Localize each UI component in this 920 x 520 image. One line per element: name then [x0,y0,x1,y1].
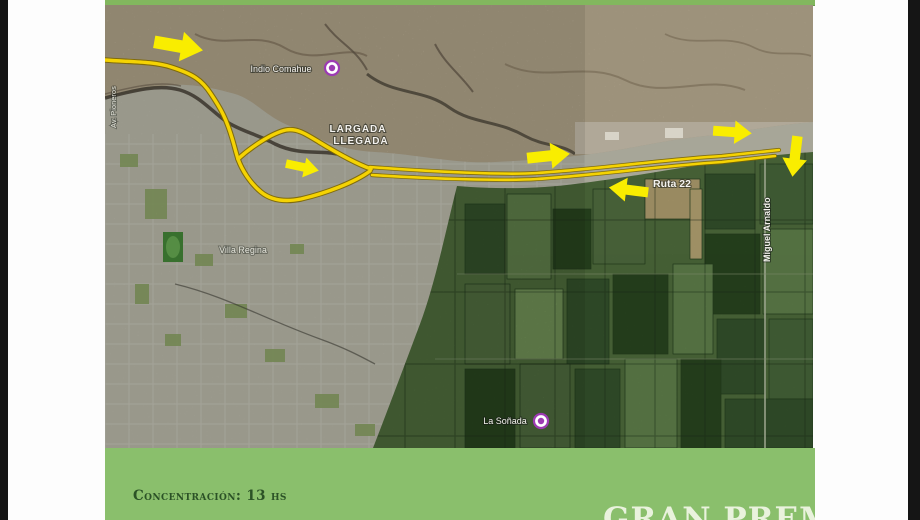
start-label-line1: LARGADA [330,124,387,135]
left-black-bar [0,0,8,520]
poi-top-label: Indio Comahue [250,64,311,74]
street-left-label: Av. Pioneros [109,86,118,128]
poi-marker-la-sonada-icon [534,414,548,428]
poi-marker-indio-comahue-icon [325,61,339,75]
start-label-line2: LLEGADA [333,136,388,147]
event-info: Concentración: 13 hs Largada: 14 hs Larg… [133,456,440,520]
event-title: GRAN PREMIO [603,501,815,520]
right-black-bar [908,0,920,520]
satellite-map: Indio Comahue LARGADA LLEGADA Ruta 22 Mi… [105,5,813,448]
highway-label: Ruta 22 [653,178,691,190]
info-band: Concentración: 13 hs Largada: 14 hs Larg… [105,448,815,520]
info-concentracion: Concentración: 13 hs [133,488,440,504]
poster: Indio Comahue LARGADA LLEGADA Ruta 22 Mi… [0,0,920,520]
poi-bottom-label: La Soñada [483,416,527,426]
street-right-label: Miguel Arnaldo [762,197,772,262]
city-label: Villa Regina [219,245,267,255]
